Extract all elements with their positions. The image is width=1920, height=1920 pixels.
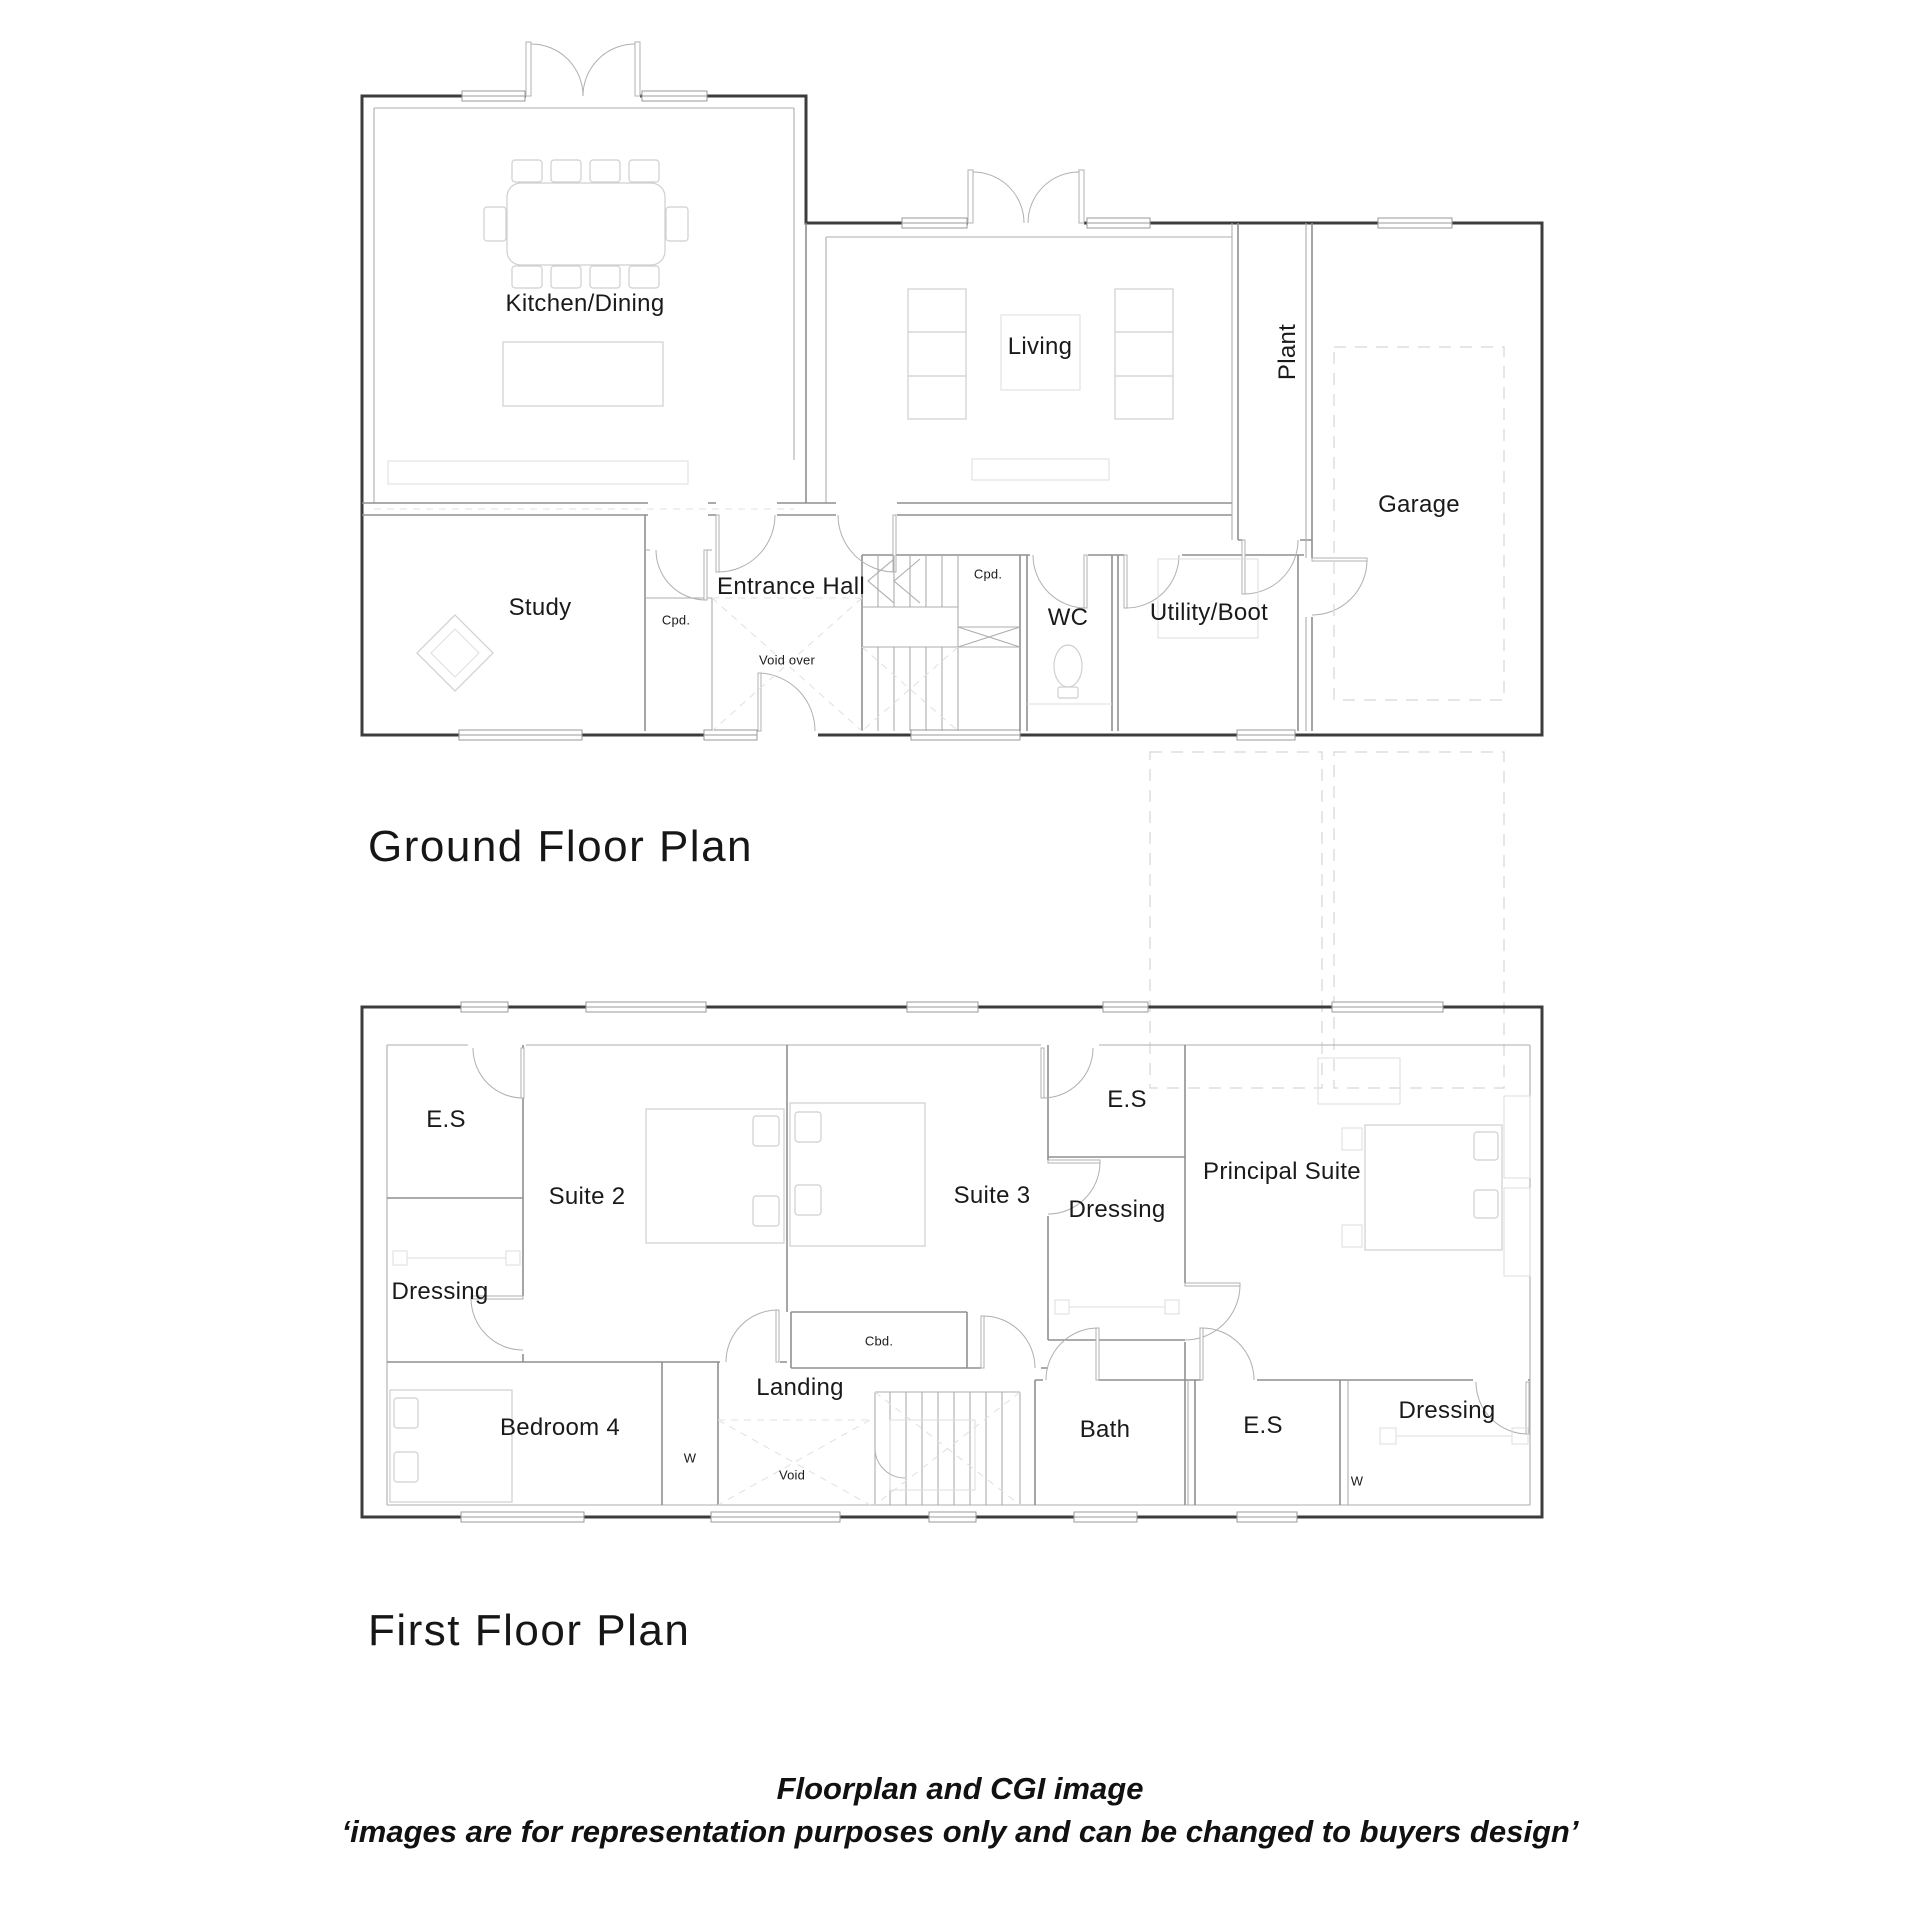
toilet bbox=[1054, 645, 1082, 687]
disclaimer-text: Floorplan and CGI image ‘images are for … bbox=[0, 1768, 1920, 1854]
dining-table bbox=[507, 183, 665, 265]
gf-kitchen-furniture bbox=[388, 160, 688, 484]
disclaimer-line2: ‘images are for representation purposes … bbox=[0, 1811, 1920, 1854]
room-label-suite3: Suite 3 bbox=[954, 1182, 1031, 1210]
bed-bedroom4 bbox=[390, 1390, 512, 1502]
kitchen-counter bbox=[388, 461, 688, 484]
room-label-entrance-hall: Entrance Hall bbox=[717, 573, 865, 601]
ff-void bbox=[718, 1420, 870, 1505]
room-label-kitchen-dining: Kitchen/Dining bbox=[506, 290, 665, 318]
room-label-cpd-stairs: Cpd. bbox=[974, 567, 1002, 582]
room-label-suite2: Suite 2 bbox=[549, 1183, 626, 1211]
ground-floor-plan bbox=[362, 42, 1542, 740]
room-label-dressing-suite2: Dressing bbox=[391, 1278, 488, 1306]
room-label-garage: Garage bbox=[1378, 491, 1460, 519]
sofa bbox=[908, 289, 966, 419]
room-label-dressing-principal: Dressing bbox=[1398, 1397, 1495, 1425]
room-label-dressing-suite3: Dressing bbox=[1068, 1196, 1165, 1224]
gf-front-door-gap bbox=[757, 729, 818, 740]
room-label-bedroom4: Bedroom 4 bbox=[500, 1414, 620, 1442]
room-label-living: Living bbox=[1008, 333, 1073, 361]
room-label-study: Study bbox=[509, 594, 572, 622]
room-label-bath: Bath bbox=[1080, 1416, 1131, 1444]
ff-windows bbox=[461, 1002, 1443, 1522]
room-label-es-bath: E.S bbox=[1243, 1412, 1283, 1440]
room-label-wardrobe-bedroom4: W bbox=[684, 1451, 696, 1466]
garage-floor-outline bbox=[1334, 347, 1504, 700]
gf-living-furniture bbox=[908, 289, 1173, 480]
room-label-es-suite2: E.S bbox=[426, 1106, 466, 1134]
ff-stairs bbox=[875, 1392, 1020, 1505]
gf-outer-walls bbox=[362, 96, 1542, 735]
ground-floor-title: Ground Floor Plan bbox=[368, 822, 753, 872]
inter-floor-dashed-outline bbox=[1150, 752, 1504, 1088]
gf-wc-fixtures bbox=[1027, 645, 1112, 704]
sofa bbox=[1115, 289, 1173, 419]
gf-inner-faces bbox=[374, 108, 1232, 509]
ff-doors bbox=[471, 1048, 1529, 1434]
room-label-es-suite3: E.S bbox=[1107, 1086, 1147, 1114]
room-label-landing: Landing bbox=[756, 1374, 844, 1402]
room-label-principal-suite: Principal Suite bbox=[1203, 1158, 1361, 1186]
disclaimer-line1: Floorplan and CGI image bbox=[0, 1768, 1920, 1811]
first-floor-title: First Floor Plan bbox=[368, 1606, 690, 1656]
gf-living-door-gap bbox=[968, 216, 1084, 229]
bed-suite3 bbox=[790, 1103, 925, 1246]
gf-study-furniture bbox=[417, 615, 493, 691]
floorplan-sheet: Ground Floor Plan First Floor Plan Kitch… bbox=[0, 0, 1920, 1920]
room-label-void-over: Void over bbox=[759, 653, 815, 668]
room-label-cbd: Cbd. bbox=[865, 1334, 893, 1349]
first-floor-plan bbox=[362, 1002, 1542, 1522]
room-label-wardrobe-principal: W bbox=[1351, 1474, 1363, 1489]
room-label-wc: WC bbox=[1048, 604, 1089, 632]
room-label-plant: Plant bbox=[1274, 324, 1302, 380]
floorplan-linework bbox=[0, 0, 1920, 1920]
room-label-utility-boot: Utility/Boot bbox=[1150, 599, 1268, 627]
kitchen-island bbox=[503, 342, 663, 406]
room-label-void: Void bbox=[779, 1468, 805, 1483]
tv-cabinet bbox=[972, 459, 1109, 480]
gf-partitions bbox=[362, 223, 1312, 731]
bed-principal bbox=[1365, 1125, 1502, 1250]
bed-suite2 bbox=[646, 1109, 784, 1243]
gf-windows bbox=[459, 91, 1452, 740]
room-label-cpd-study: Cpd. bbox=[662, 613, 690, 628]
